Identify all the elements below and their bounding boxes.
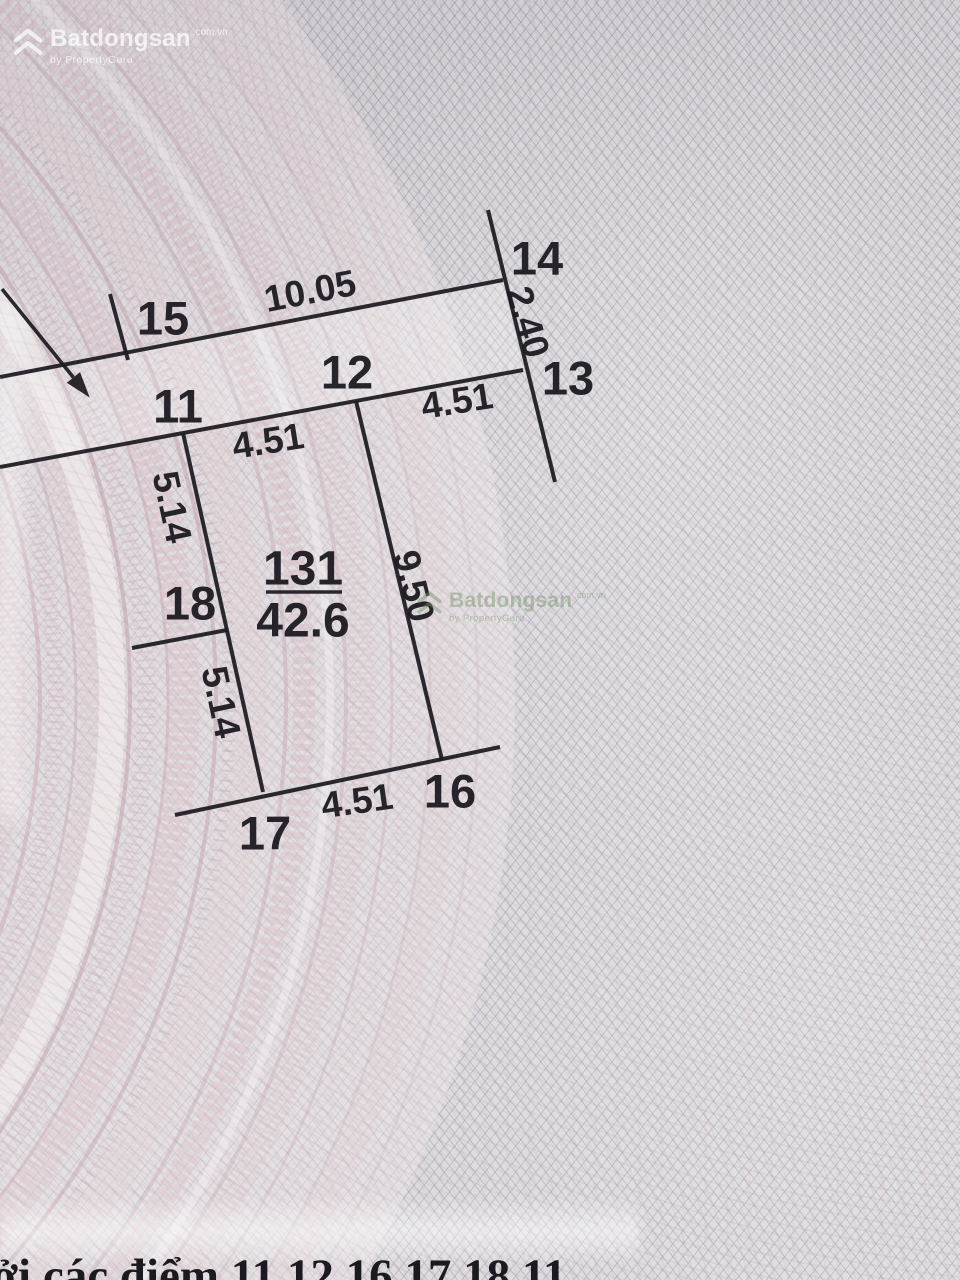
- point-label-13: 13: [542, 352, 594, 405]
- watermark-domain-text: .com.vn: [574, 591, 606, 600]
- point-label-12: 12: [321, 346, 373, 399]
- point-label-11: 11: [153, 380, 203, 433]
- watermark-brand-text: Batdongsan: [449, 590, 572, 611]
- point-label-18: 18: [164, 577, 216, 630]
- point-label-16: 16: [424, 765, 476, 818]
- point-label-14: 14: [511, 232, 563, 285]
- parcel-number-label: 131: [263, 543, 343, 596]
- land-certificate-photo: 141513121118171610.052.404.514.515.149.5…: [0, 0, 960, 1280]
- batdongsan-watermark-top-left: Batdongsan .com.vn by PropertyGuru: [13, 27, 228, 66]
- batdongsan-logo-icon: [417, 590, 442, 617]
- dim-4-51-seg-17-16: 4.51: [318, 776, 395, 827]
- parcel-area-label: 42.6: [256, 595, 349, 648]
- boundary-points-caption: ởi các điểm 11,12,16,17,18,11: [0, 1249, 892, 1280]
- point-label-17: 17: [239, 807, 291, 860]
- point-label-15: 15: [137, 292, 189, 345]
- north-access-arrow: [2, 289, 73, 377]
- watermark-byline-text: by PropertyGuru: [449, 614, 606, 624]
- dim-5-14-seg-18-17: 5.14: [193, 663, 248, 742]
- batdongsan-logo-icon: [13, 27, 43, 59]
- watermark-byline-text: by PropertyGuru: [50, 55, 228, 66]
- watermark-domain-text: .com.vn: [193, 28, 228, 38]
- watermark-brand-text: Batdongsan: [50, 27, 191, 51]
- tick-point-18: [132, 630, 227, 648]
- tick-point-15: [110, 294, 128, 360]
- batdongsan-watermark-center: Batdongsan .com.vn by PropertyGuru: [417, 590, 606, 624]
- cadastral-plot-diagram: 141513121118171610.052.404.514.515.149.5…: [0, 0, 960, 1280]
